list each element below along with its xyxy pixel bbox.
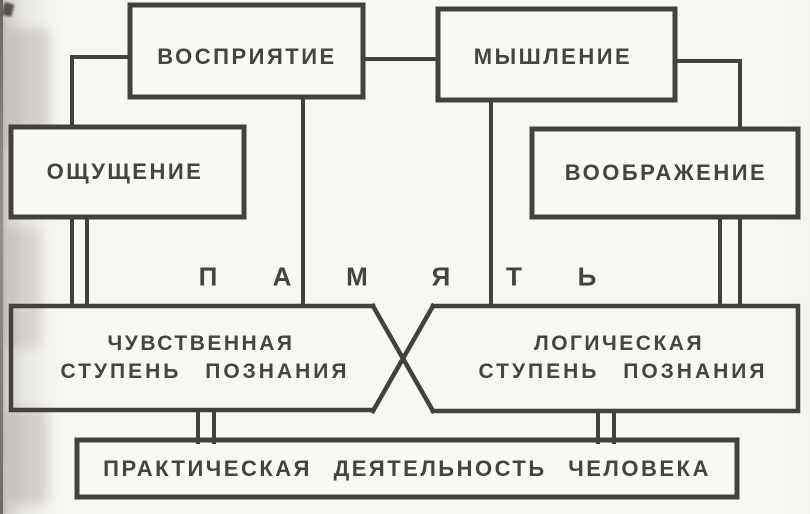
connector-logical-stage-practical (598, 411, 614, 442)
node-perception-label: ВОСПРИЯТИЕ (157, 44, 336, 70)
memory-letter: П (199, 262, 218, 293)
banner-logical-stage-line1: ЛОГИЧЕСКАЯ (534, 332, 704, 356)
banner-sensory-stage-line1: ЧУВСТВЕННАЯ (108, 332, 295, 356)
connector-perception-sensation (72, 57, 130, 127)
memory-letter: А (273, 262, 292, 293)
banner-sensory-stage-outline (11, 306, 373, 410)
node-sensation-label: ОЩУЩЕНИЕ (47, 159, 204, 185)
connector-imagination-logical-stage (720, 217, 740, 306)
memory-letter: Я (432, 262, 451, 293)
diagram-canvas: ВОСПРИЯТИЕ МЫШЛЕНИЕ ОЩУЩЕНИЕ ВООБРАЖЕНИЕ… (0, 0, 810, 514)
banner-sensory-stage-line2: СТУПЕНЬ ПОЗНАНИЯ (61, 360, 350, 384)
memory-letter: М (346, 262, 368, 293)
diagram-lines (0, 0, 810, 514)
node-practical-activity-label: ПРАКТИЧЕСКАЯ ДЕЯТЕЛЬНОСТЬ ЧЕЛОВЕКА (103, 456, 711, 482)
memory-letter: Ь (578, 262, 597, 293)
connector-sensation-sensory-stage (72, 217, 87, 306)
memory-letter: Т (506, 262, 522, 293)
connector-thinking-imagination (675, 61, 740, 129)
banner-logical-stage-line2: СТУПЕНЬ ПОЗНАНИЯ (479, 360, 768, 384)
connector-sensory-stage-practical (198, 410, 214, 442)
banner-logical-stage-outline (433, 306, 798, 411)
banner-cross-lines (373, 306, 433, 411)
node-imagination-label: ВООБРАЖЕНИЕ (565, 160, 767, 186)
node-thinking-label: МЫШЛЕНИЕ (474, 44, 632, 70)
